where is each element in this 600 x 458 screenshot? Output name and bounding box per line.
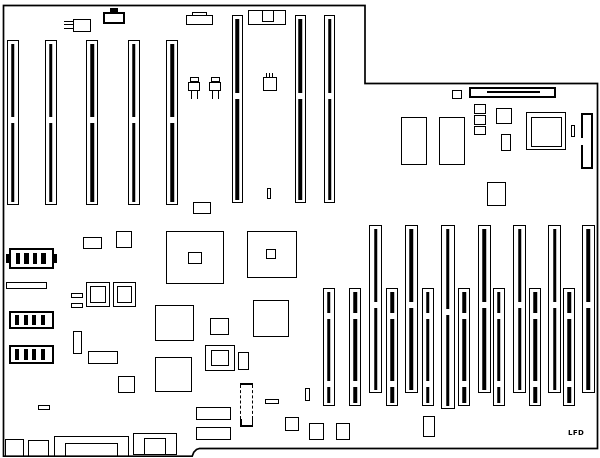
left-vrect xyxy=(73,331,82,354)
isa-slot-3 xyxy=(86,40,98,205)
mid-tiny-vrect xyxy=(267,188,271,199)
battery-cell-2 xyxy=(24,253,29,265)
din-connector-notch xyxy=(262,10,274,22)
bl-rect-1 xyxy=(5,439,25,457)
mem-slot-10 xyxy=(493,288,505,406)
mem-slot-11-key-gap-1 xyxy=(517,302,522,308)
left-small-rect xyxy=(83,237,102,249)
jumper-2-pin-3 xyxy=(32,349,36,360)
bm-rect-1 xyxy=(196,407,231,420)
ne-small-vrect xyxy=(501,134,511,151)
bm-tiny-vrect xyxy=(305,388,310,401)
bm-square-2 xyxy=(309,423,324,440)
isa-slot-4 xyxy=(128,40,140,205)
mem-slot-14-key-gap-2 xyxy=(567,381,572,387)
ne-small-rect xyxy=(452,90,463,99)
mem-slot-14 xyxy=(563,288,575,406)
isa-slot-4-key-gap-1 xyxy=(131,117,136,123)
battery-cell-3 xyxy=(33,253,38,265)
mem-slot-1-key-gap-2 xyxy=(326,381,331,387)
dbl-square-2-inner xyxy=(117,286,133,303)
right-edge-connector-gap xyxy=(579,138,584,145)
cpu-side-rect xyxy=(571,125,576,138)
mem-slot-3 xyxy=(369,225,382,393)
transistor-2-body xyxy=(209,82,221,92)
bm-square-1 xyxy=(285,417,299,431)
mid-small-rect xyxy=(193,202,211,214)
br-vrect xyxy=(423,416,435,437)
mem-slot-7-key-gap-1 xyxy=(445,309,450,315)
transistor-2-leg-1 xyxy=(212,91,213,99)
ne-square-low xyxy=(487,182,507,206)
board-label: LFD xyxy=(568,429,584,437)
tiny-hbar-2 xyxy=(71,303,83,308)
mem-slot-10-key-gap-1 xyxy=(496,313,501,319)
mem-slot-9 xyxy=(478,225,491,393)
bl-rect-2 xyxy=(28,440,49,457)
isa-slot-7-key-gap-1 xyxy=(298,93,303,99)
mem-slot-2-key-gap-2 xyxy=(353,381,358,387)
isa-slot-1-key-gap-1 xyxy=(10,117,15,123)
sq-stack-1 xyxy=(474,104,486,114)
isa-slot-2 xyxy=(45,40,57,205)
mem-slot-13-key-gap-1 xyxy=(552,302,557,308)
isa-slot-7-key-bar xyxy=(298,19,302,200)
cpu-inner xyxy=(531,117,563,147)
isa-slot-6-key-bar xyxy=(235,19,239,200)
bm-square-3 xyxy=(336,423,350,440)
big-square-1 xyxy=(155,305,194,341)
transistor-1-body xyxy=(188,82,200,92)
transistor-1-leg-1 xyxy=(191,91,192,99)
jumper-1-pin-1 xyxy=(15,315,19,326)
jumper-1-pin-4 xyxy=(41,315,45,326)
mem-slot-5-key-gap-1 xyxy=(409,302,414,308)
battery-cell-4 xyxy=(41,253,46,265)
mem-slot-10-key-gap-2 xyxy=(496,381,501,387)
crystal-body xyxy=(73,19,92,32)
dbl-square-1-inner xyxy=(90,286,106,303)
mem-slot-1-key-gap-1 xyxy=(326,313,331,319)
isa-slot-6-key-gap-1 xyxy=(235,93,240,99)
jumper-1-pin-2 xyxy=(24,315,28,326)
mem-slot-6-key-gap-1 xyxy=(425,313,430,319)
mem-slot-3-key-bar xyxy=(374,229,378,390)
mem-slot-9-key-bar xyxy=(482,229,486,390)
transistor-1-leg-2 xyxy=(197,91,198,99)
mem-slot-15 xyxy=(582,225,595,393)
mem-slot-14-key-gap-1 xyxy=(567,313,572,319)
crystal-pin-2 xyxy=(64,24,74,25)
mem-slot-13 xyxy=(548,225,561,393)
kbd-connector-body xyxy=(186,15,213,25)
top-connector-body xyxy=(103,12,125,24)
cap-body xyxy=(263,77,277,91)
mem-slot-4-key-gap-1 xyxy=(390,313,395,319)
isa-slot-7 xyxy=(295,15,306,203)
jumper-1-pin-3 xyxy=(32,315,36,326)
chip-1-inner xyxy=(188,252,202,264)
chip-2-inner xyxy=(266,249,276,259)
mem-slot-3-key-gap-1 xyxy=(373,302,378,308)
tiny-hbar-1 xyxy=(71,293,83,298)
sq-stack-2 xyxy=(474,115,486,125)
transistor-2-leg-2 xyxy=(218,91,219,99)
battery-tab-right xyxy=(54,254,58,264)
mem-slot-12-key-gap-2 xyxy=(533,381,538,387)
bottom-power-inner xyxy=(144,438,166,456)
ram-chip-1 xyxy=(401,117,427,166)
bottom-connector-inner xyxy=(65,443,118,457)
mem-slot-7 xyxy=(441,225,455,409)
crystal-pin-3 xyxy=(64,28,74,29)
mem-slot-1 xyxy=(323,288,335,406)
isa-slot-1 xyxy=(7,40,19,205)
isa-slot-8-key-gap-1 xyxy=(327,93,332,99)
dash-comp-right xyxy=(252,385,253,419)
mem-slot-8-key-gap-2 xyxy=(462,381,467,387)
mem-slot-2 xyxy=(349,288,361,406)
mem-slot-11 xyxy=(513,225,526,393)
mid-vrect xyxy=(238,352,249,371)
left-square-low xyxy=(118,376,135,393)
mem-slot-7-key-bar xyxy=(446,229,450,406)
tiny-hbar-3 xyxy=(38,405,50,410)
left-hrect xyxy=(88,351,118,365)
ram-chip-2 xyxy=(439,117,465,166)
isa-slot-8-key-bar xyxy=(328,19,332,200)
dash-comp-left xyxy=(240,385,241,419)
mid-square-2 xyxy=(253,300,290,337)
battery-cell-1 xyxy=(16,253,21,265)
dash-comp-bot xyxy=(240,425,253,427)
mem-slot-5-key-bar xyxy=(409,229,413,390)
mem-slot-5 xyxy=(405,225,418,393)
mem-slot-12 xyxy=(529,288,541,406)
isa-slot-8 xyxy=(324,15,335,203)
jumper-2-pin-2 xyxy=(24,349,28,360)
ne-med-square xyxy=(496,108,512,124)
mem-slot-6-key-gap-2 xyxy=(425,381,430,387)
mem-slot-11-key-bar xyxy=(518,229,522,390)
mem-slot-6 xyxy=(422,288,434,406)
mem-slot-12-key-gap-1 xyxy=(533,313,538,319)
mem-slot-15-key-gap-1 xyxy=(586,302,591,308)
ne-long-connector-key xyxy=(487,91,540,93)
mem-slot-8 xyxy=(458,288,470,406)
motherboard-diagram: LFD xyxy=(0,0,600,458)
mid-square-1 xyxy=(210,318,229,336)
mem-slot-15-key-bar xyxy=(586,229,590,390)
crystal-pin-1 xyxy=(64,21,74,22)
mem-slot-8-key-gap-1 xyxy=(462,313,467,319)
bm-hbar xyxy=(265,399,279,404)
mem-slot-4-key-gap-2 xyxy=(390,381,395,387)
sq-stack-3 xyxy=(474,126,486,135)
left-small-square xyxy=(116,231,132,248)
isa-slot-6 xyxy=(232,15,243,203)
battery-tab-left xyxy=(6,254,10,264)
jumper-2-pin-4 xyxy=(41,349,45,360)
isa-slot-5-key-gap-1 xyxy=(170,117,175,123)
left-hbar xyxy=(6,282,47,289)
isa-slot-5 xyxy=(166,40,178,205)
dbl-square-3-inner xyxy=(211,350,229,366)
mem-slot-4 xyxy=(386,288,398,406)
isa-slot-2-key-gap-1 xyxy=(48,117,53,123)
mem-slot-9-key-gap-1 xyxy=(482,302,487,308)
mem-slot-2-key-gap-1 xyxy=(353,313,358,319)
bm-rect-2 xyxy=(196,427,231,440)
jumper-2-pin-1 xyxy=(15,349,19,360)
big-square-2 xyxy=(155,357,192,392)
isa-slot-3-key-gap-1 xyxy=(90,117,95,123)
mem-slot-13-key-bar xyxy=(553,229,557,390)
